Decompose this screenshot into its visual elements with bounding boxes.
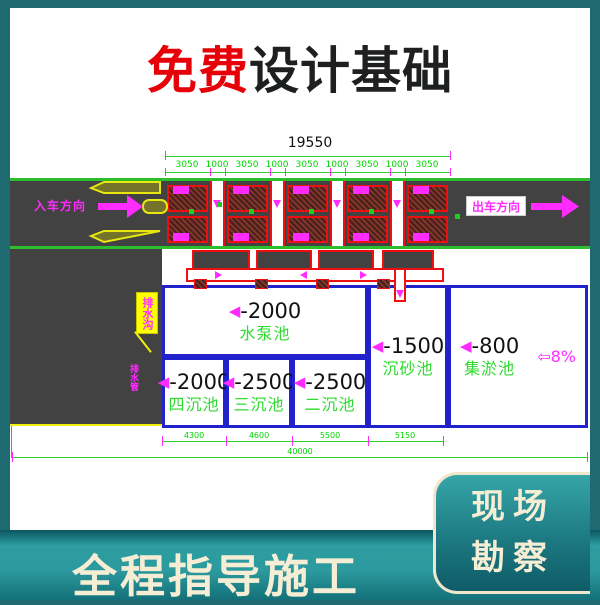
bottom-dim-1: 4300 [174,432,214,440]
tank-grit-chamber: ◀-1500 沉砂池 [368,285,448,428]
overall-top-dimension: 19550 [260,136,360,150]
flow-arrow-left [300,271,307,279]
dimension-tick [390,168,391,176]
banner-text: 全程指导施工 [0,540,432,605]
tank-depth: -2000 [169,370,230,394]
dimension-tick [285,168,286,176]
flow-arrow-right [360,271,367,279]
tank-name: 四沉池 [158,396,231,414]
dimension-line [162,441,443,442]
top-dim-5: 3050 [292,161,322,170]
tank-name: 二沉池 [294,396,367,414]
guide-plate-top [91,182,160,193]
page-title: 免费设计基础 [0,44,600,99]
depth-triangle-icon: ◀ [460,337,472,355]
tank-label: ◀-2000 四沉池 [158,370,231,415]
bottom-dim-3: 5500 [310,432,350,440]
corner-card: 现场 勘察 [433,472,590,594]
channel-pier [194,279,207,289]
title-highlight: 免费 [147,42,249,100]
entry-direction-label: 入车方向 [34,197,86,214]
tank-pump-pool: ◀-2000 水泵池 [162,285,368,357]
pavement-edge-yellow-line [10,424,162,426]
tank-depth: -2000 [240,299,301,323]
depth-triangle-icon: ◀ [229,302,241,320]
entry-arrow-shaft [98,203,128,210]
dimension-tick [330,168,331,176]
drain-callout-text: 排水沟 [139,297,155,330]
overall-bottom-dimension: 40000 [270,448,330,456]
top-dim-7: 3050 [352,161,382,170]
bottom-dim-4: 5150 [385,432,425,440]
collector-cell [318,250,374,270]
channel-pier [255,279,268,289]
tank-depth: -2500 [305,370,366,394]
tank-depth: -800 [472,334,520,358]
depth-triangle-icon: ◀ [223,373,235,391]
dimension-line [165,172,450,173]
exit-arrow-shaft [531,203,563,210]
flow-arrow-right [215,271,222,279]
tank-depth: -1500 [383,334,444,358]
dimension-tick [162,436,163,446]
dimension-tick [345,168,346,176]
guide-tab [143,200,167,213]
top-dim-1: 3050 [172,161,202,170]
top-dim-2: 1000 [202,161,232,170]
drop-channel [394,268,406,302]
dimension-tick [12,452,13,462]
channel-pier [316,279,329,289]
tank-name: 沉砂池 [372,360,445,378]
dimension-tick [225,168,226,176]
dimension-line [12,457,588,458]
dimension-tick [210,168,211,176]
dimension-tick [443,436,444,446]
tank-name: 集淤池 [460,360,519,378]
entry-arrow-head [127,195,143,218]
card-line-2: 勘察 [471,533,555,584]
dimension-tick [587,452,588,462]
exit-arrow-head [562,195,579,218]
collector-cell [256,250,312,270]
slope-label: ⇦8% [537,347,576,366]
top-dim-8: 1000 [382,161,412,170]
green-marker [455,214,460,219]
drain-note-text: 排水管 [127,364,140,391]
bottom-dim-2: 4600 [239,432,279,440]
dimension-tick [292,436,293,446]
collector-cell [382,250,434,270]
channel-pier [377,279,390,289]
slope-arrow-icon: ⇦ [537,347,550,366]
dimension-tick [405,168,406,176]
tank-silt-collection: ◀-800 集淤池 ⇦8% [448,285,588,428]
tank-label: ◀-2500 二沉池 [294,370,367,415]
top-dim-6: 1000 [322,161,352,170]
dimension-tick [368,436,369,446]
drain-note: 排水管 [127,354,140,400]
dimension-tick [270,168,271,176]
top-dim-9: 3050 [412,161,442,170]
dimension-line [165,156,450,157]
tank-label: ◀-2000 水泵池 [229,299,302,344]
tank-depth: -2500 [234,370,295,394]
tank-label: ◀-800 集淤池 [460,334,519,379]
tank-label: ◀-1500 沉砂池 [372,334,445,379]
dimension-tick [165,151,166,160]
tank-name: 三沉池 [223,396,296,414]
guide-plate-bottom [91,231,160,242]
tank-second-settling: ◀-2500 二沉池 [292,357,368,428]
tank-name: 水泵池 [229,325,302,343]
slope-value: 8% [551,347,576,366]
dimension-tick [450,168,451,176]
top-dim-3: 3050 [232,161,262,170]
drain-callout-box: 排水沟 [136,292,158,334]
title-rest: 设计基础 [249,42,453,100]
depth-triangle-icon: ◀ [158,373,170,391]
tank-fourth-settling: ◀-2000 四沉池 [162,357,226,428]
depth-triangle-icon: ◀ [372,337,384,355]
top-dim-4: 1000 [262,161,292,170]
tank-label: ◀-2500 三沉池 [223,370,296,415]
green-marker [217,202,222,207]
exit-direction-label: 出车方向 [466,196,526,216]
dimension-tick [226,436,227,446]
collector-cell [192,250,250,270]
flow-arrow-down [396,290,404,298]
tank-third-settling: ◀-2500 三沉池 [226,357,292,428]
depth-triangle-icon: ◀ [294,373,306,391]
card-line-1: 现场 [471,482,555,533]
dimension-tick [450,151,451,160]
dimension-tick [165,168,166,176]
